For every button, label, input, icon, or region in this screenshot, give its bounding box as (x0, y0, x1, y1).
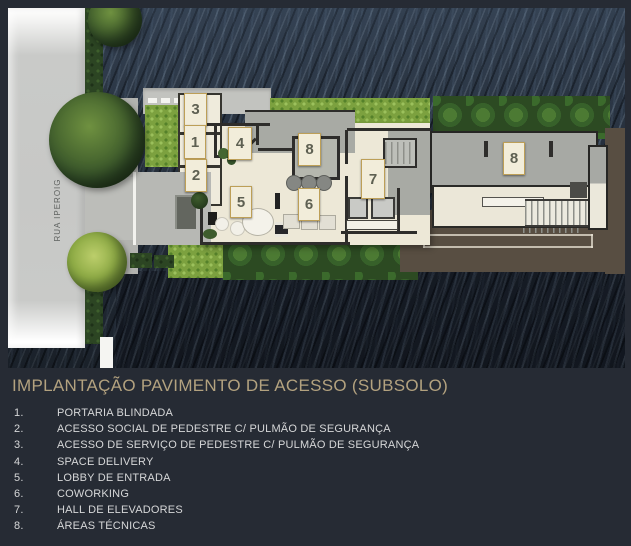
legend-item-number: 7. (14, 504, 57, 516)
legend-item: 5.LOBBY DE ENTRADA (14, 470, 614, 486)
legend-item: 6.COWORKING (14, 486, 614, 502)
legend-item-number: 6. (14, 488, 57, 500)
legend-item-number: 1. (14, 407, 57, 419)
plan-marker-2: 2 (185, 159, 207, 192)
legend-item-number: 4. (14, 456, 57, 468)
plan-marker-7: 7 (361, 159, 385, 199)
legend-item-number: 3. (14, 439, 57, 451)
legend-item-label: LOBBY DE ENTRADA (57, 472, 171, 484)
legend-item: 1.PORTARIA BLINDADA (14, 405, 614, 421)
street-name-label: RUA IPEROIG (53, 169, 65, 251)
page-background: { "header": { "title": "IMPLANTAÇÃO PAVI… (0, 0, 631, 546)
legend-item-label: ÁREAS TÉCNICAS (57, 520, 156, 532)
legend-item-label: SPACE DELIVERY (57, 456, 154, 468)
hedge-square (130, 253, 152, 268)
building-right-step (588, 145, 608, 230)
legend-item: 7.HALL DE ELEVADORES (14, 502, 614, 518)
chair (319, 215, 336, 230)
legend-item: 4.SPACE DELIVERY (14, 454, 614, 470)
escalator (383, 138, 417, 168)
plan-marker-5: 5 (230, 186, 252, 218)
plan-marker-3: 3 (184, 93, 207, 126)
hedge-square (154, 255, 174, 268)
caption-area: IMPLANTAÇÃO PAVIMENTO DE ACESSO (SUBSOLO… (0, 368, 631, 546)
legend-item-label: HALL DE ELEVADORES (57, 504, 183, 516)
tree (67, 232, 127, 292)
wing-lower-strip (432, 185, 590, 228)
marble-background-lower (116, 271, 625, 368)
plan-marker-4: 4 (228, 127, 252, 160)
elevator (348, 197, 368, 219)
legend-item-label: COWORKING (57, 488, 129, 500)
plan-marker-1: 1 (184, 125, 206, 159)
site-plan: RUA IPEROIG 312485678 (8, 8, 625, 368)
walkway-strip (100, 337, 113, 368)
legend-item-number: 8. (14, 520, 57, 532)
plant (191, 192, 208, 209)
vent-shaft (570, 182, 587, 198)
legend-list: 1.PORTARIA BLINDADA2.ACESSO SOCIAL DE PE… (14, 405, 614, 535)
plant (203, 229, 217, 239)
legend-item-number: 5. (14, 472, 57, 484)
legend-item: 8.ÁREAS TÉCNICAS (14, 518, 614, 534)
bench (275, 193, 280, 209)
elevator-lobby (346, 220, 398, 230)
elevator (371, 197, 395, 219)
plan-marker-8: 8 (298, 133, 321, 166)
page-title: IMPLANTAÇÃO PAVIMENTO DE ACESSO (SUBSOLO… (12, 376, 448, 396)
legend-item-label: PORTARIA BLINDADA (57, 407, 173, 419)
legend-item: 2.ACESSO SOCIAL DE PEDESTRE C/ PULMÃO DE… (14, 421, 614, 437)
chair (215, 217, 229, 231)
legend-item-label: ACESSO DE SERVIÇO DE PEDESTRE C/ PULMÃO … (57, 439, 419, 451)
legend-item: 3.ACESSO DE SERVIÇO DE PEDESTRE C/ PULMÃ… (14, 437, 614, 453)
legend-item-number: 2. (14, 423, 57, 435)
plan-marker-8: 8 (503, 142, 525, 175)
plan-marker-6: 6 (298, 188, 320, 221)
legend-item-label: ACESSO SOCIAL DE PEDESTRE C/ PULMÃO DE S… (57, 423, 391, 435)
